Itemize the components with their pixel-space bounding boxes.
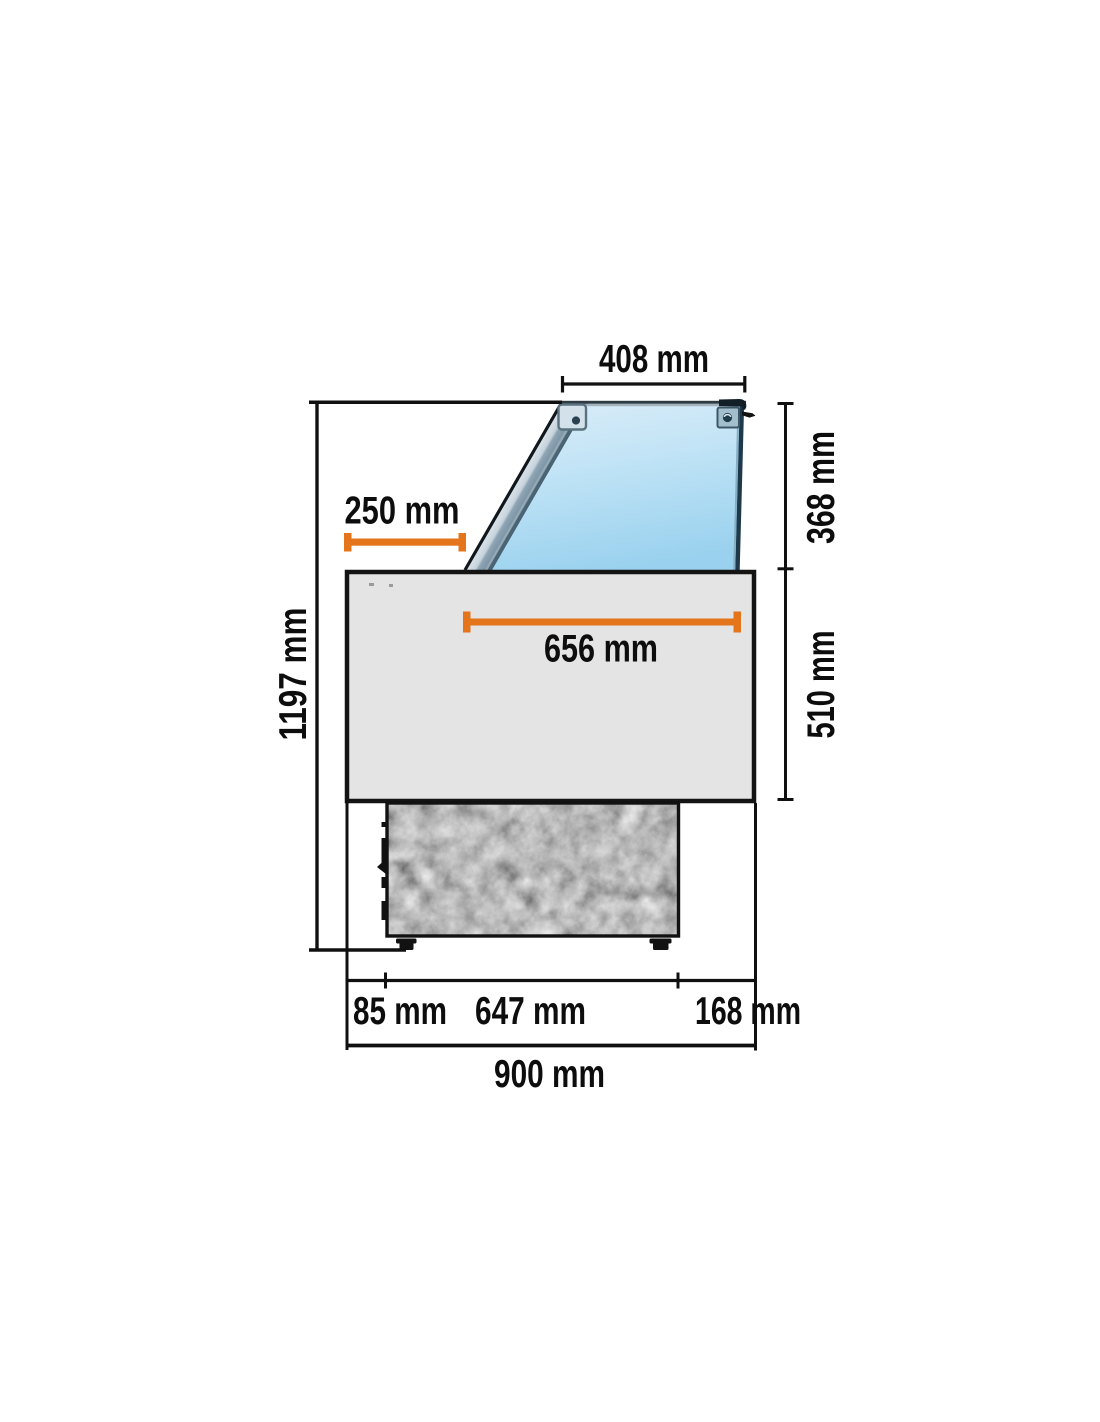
svg-text:250 mm: 250 mm bbox=[345, 490, 460, 533]
svg-text:656 mm: 656 mm bbox=[544, 628, 658, 671]
svg-text:900 mm: 900 mm bbox=[494, 1053, 605, 1096]
svg-text:408 mm: 408 mm bbox=[599, 338, 709, 381]
svg-text:368 mm: 368 mm bbox=[800, 431, 843, 544]
svg-text:647 mm: 647 mm bbox=[475, 990, 586, 1033]
svg-text:510 mm: 510 mm bbox=[800, 631, 843, 739]
svg-text:85 mm: 85 mm bbox=[353, 990, 447, 1033]
svg-text:1197 mm: 1197 mm bbox=[272, 608, 315, 741]
svg-text:168 mm: 168 mm bbox=[695, 990, 801, 1033]
